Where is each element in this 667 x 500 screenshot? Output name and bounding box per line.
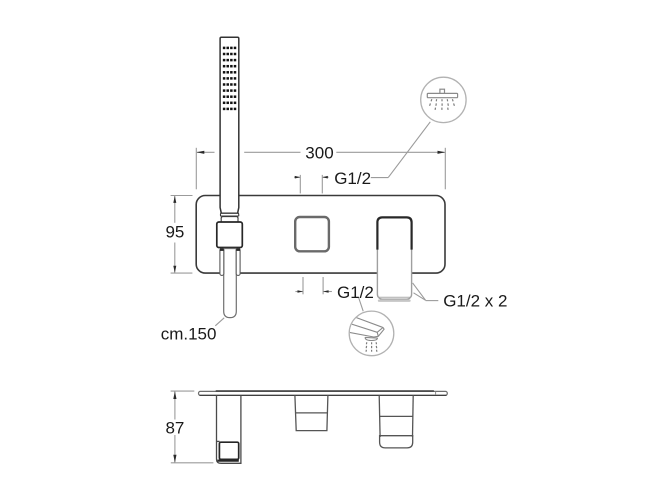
svg-text:300: 300 (305, 144, 333, 163)
svg-text:cm.150: cm.150 (161, 325, 217, 344)
svg-text:87: 87 (165, 419, 184, 438)
svg-text:95: 95 (165, 222, 184, 241)
svg-text:G1/2: G1/2 (337, 283, 374, 302)
svg-text:G1/2 x 2: G1/2 x 2 (443, 292, 507, 311)
svg-text:G1/2: G1/2 (334, 169, 371, 188)
